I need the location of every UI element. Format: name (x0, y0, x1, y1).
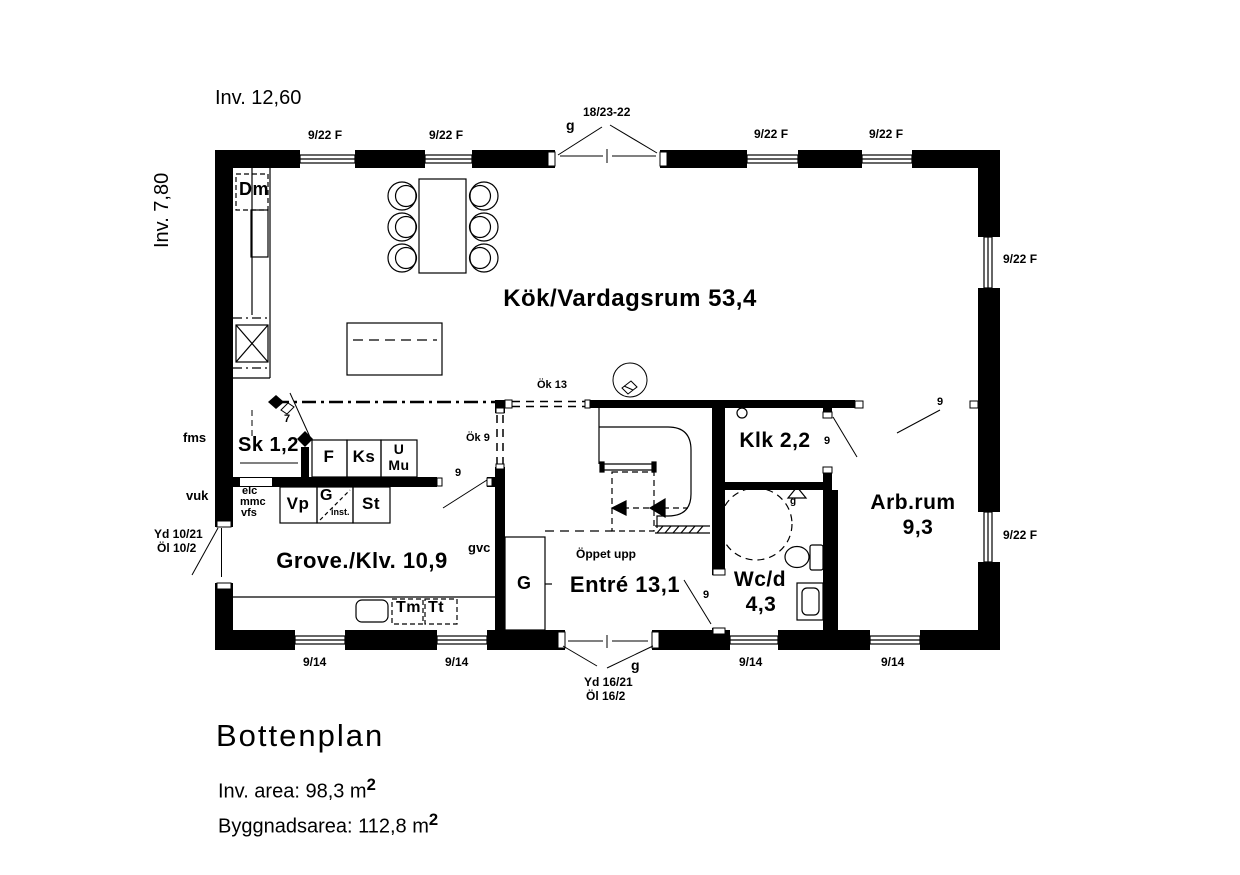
window-label-914-1: 9/14 (303, 656, 326, 669)
door-label-ol102: Öl 10/2 (157, 542, 196, 555)
room-label-arbrum: Arb.rum (870, 492, 955, 514)
building-area-text: Byggnadsarea: 112,8 m2 (218, 811, 438, 838)
plan-title: Bottenplan (216, 720, 384, 753)
dining-table (388, 179, 498, 273)
door-width-7: 7 (284, 414, 290, 426)
window-label-922-right-1: 9/22 F (1003, 253, 1037, 266)
label-vfs: vfs (241, 508, 257, 520)
door-label-ol162: Öl 16/2 (586, 690, 625, 703)
label-vuk: vuk (186, 489, 208, 503)
door-width-9-grove: 9 (455, 468, 461, 480)
serving-openings (497, 402, 585, 465)
room-label-wc: Wc/d (734, 569, 786, 591)
kitchen-counter (233, 168, 270, 378)
appliance-label-u: U (394, 442, 405, 457)
dimension-inv-depth: Inv. 7,80 (152, 173, 173, 248)
building-area-sup: 2 (429, 810, 438, 829)
window-label-914-4: 9/14 (881, 656, 904, 669)
appliance-label-g-inst: G (320, 488, 333, 505)
door-width-9-wc: 9 (703, 590, 709, 602)
door-label-1823-22: 18/23-22 (583, 106, 630, 119)
appliance-label-inst: inst. (331, 508, 350, 517)
label-fms: fms (183, 431, 206, 445)
window-label-922-top-4: 9/22 F (869, 128, 903, 141)
door-label-g-top: g (566, 118, 575, 133)
room-label-sk: Sk 1,2 (238, 435, 299, 456)
staircase (545, 408, 710, 533)
window-label-922-top-3: 9/22 F (754, 128, 788, 141)
appliance-label-ks: Ks (353, 448, 376, 466)
opening-label-ok13: Ök 13 (537, 380, 567, 392)
opening-label-ok9: Ök 9 (466, 433, 490, 445)
door-width-9-arbrum: 9 (937, 397, 943, 409)
window-label-922-top-1: 9/22 F (308, 129, 342, 142)
appliance-label-dm: Dm (239, 180, 269, 199)
room-label-kitchen-living: Kök/Vardagsrum 53,4 (503, 286, 757, 311)
label-gvc: gvc (468, 541, 490, 555)
grove-counter (233, 597, 497, 624)
room-label-entre: Entré 13,1 (570, 573, 680, 596)
window-label-914-3: 9/14 (739, 656, 762, 669)
inv-area-sup: 2 (367, 775, 376, 794)
room-label-klk: Klk 2,2 (739, 430, 810, 452)
kitchen-island (347, 323, 442, 375)
chimney-symbol (613, 363, 647, 397)
door-label-yd1621: Yd 16/21 (584, 676, 633, 689)
inv-area-value: Inv. area: 98,3 m (218, 781, 367, 803)
appliance-label-f: F (324, 448, 335, 466)
building-area-value: Byggnadsarea: 112,8 m (218, 816, 429, 838)
window-label-922-right-2: 9/22 F (1003, 529, 1037, 542)
door-width-9-klk: 9 (824, 436, 830, 448)
room-label-wc-area: 4,3 (746, 594, 777, 616)
appliance-label-st: St (362, 495, 380, 513)
appliance-label-wardrobe-g: G (517, 574, 532, 593)
room-label-arbrum-area: 9,3 (903, 517, 934, 539)
floor-plan: Inv. 12,60 Inv. 7,80 9/22 F 9/22 F g 18/… (0, 0, 1240, 875)
label-floor-drain-g: g (790, 497, 796, 508)
klk-lamp (737, 408, 747, 418)
appliance-label-vp: Vp (287, 495, 310, 513)
room-label-grove: Grove./Klv. 10,9 (276, 549, 447, 572)
appliance-label-tm: Tm (396, 600, 421, 617)
window-label-914-2: 9/14 (445, 656, 468, 669)
appliance-label-tt: Tt (428, 600, 444, 617)
inv-area-text: Inv. area: 98,3 m2 (218, 776, 376, 803)
door-label-g-bottom: g (631, 658, 640, 673)
dimension-inv-width: Inv. 12,60 (215, 88, 301, 109)
label-oppet-upp: Öppet upp (576, 548, 636, 561)
appliance-label-mu: Mu (388, 458, 409, 473)
window-label-922-top-2: 9/22 F (429, 129, 463, 142)
door-label-yd1021: Yd 10/21 (154, 528, 203, 541)
